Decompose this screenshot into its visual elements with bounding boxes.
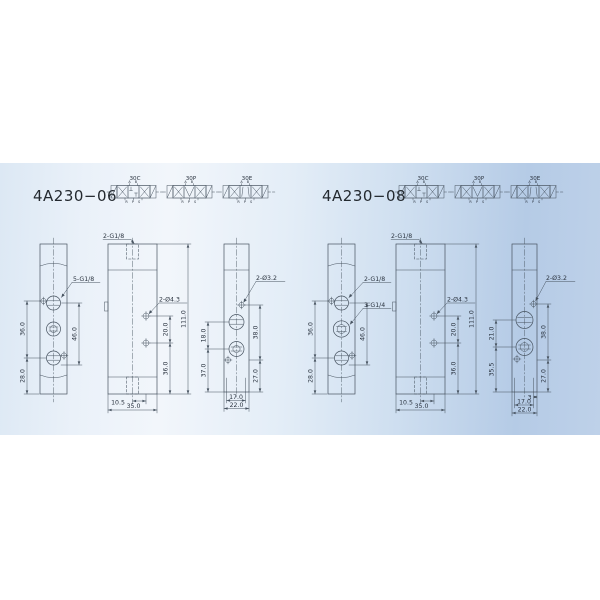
valve-symbol-row-06: 30C A B R P S 30P A B R P S <box>107 174 275 204</box>
front-view-08: 2-G1/8 2-Ø4.3 20.0 36.0 111.0 10.5 35.0 <box>386 230 494 416</box>
thread-label: 2-G1/8 <box>391 233 412 240</box>
valve-symbol-row-08: 30C A B R P S 30P A B R P S <box>395 174 563 204</box>
valve-symbol-30e: 30E A B R P S <box>507 174 563 204</box>
dim-label: 18.0 <box>201 329 208 343</box>
dim-label: 10.5 <box>111 400 125 407</box>
dim-label: 111.0 <box>181 310 188 328</box>
dim-label: 46.0 <box>360 327 367 341</box>
symbol-bottom-ports: R P S <box>469 200 485 204</box>
hole-label: 2-Ø3.2 <box>546 274 567 282</box>
symbol-bottom-ports: R P S <box>413 200 429 204</box>
symbol-top-ports: A B <box>184 180 194 184</box>
dim-label: 27.0 <box>541 369 548 383</box>
dim-label: 21.0 <box>489 327 496 341</box>
front-view-06: 2-G1/8 2-Ø4.3 20.0 36.0 111.0 10.5 35.0 <box>98 230 206 416</box>
dim-label: 36.0 <box>20 322 27 336</box>
hole-label: 2-Ø3.2 <box>256 274 277 282</box>
valve-symbol-30e: 30E A B R P S <box>219 174 275 204</box>
valve-symbol-art <box>451 184 507 201</box>
symbol-top-ports: A B <box>528 180 538 184</box>
side-view-art <box>493 238 575 416</box>
port-view-art <box>24 238 100 402</box>
dim-label: 46.0 <box>72 327 79 341</box>
thread-label: 2-G1/8 <box>364 276 385 283</box>
symbol-top-ports: A B <box>128 180 138 184</box>
valve-symbol-art <box>507 184 563 201</box>
port-view-art <box>312 238 391 402</box>
dim-label: 111.0 <box>469 310 476 328</box>
dim-label: 27.0 <box>253 369 260 383</box>
valve-symbol-art <box>163 184 219 201</box>
catalog-drawing-page: 4A230−06 30C A B R P S <box>0 0 600 600</box>
dim-label: 17.0 <box>229 394 243 401</box>
symbol-top-ports: A B <box>416 180 426 184</box>
symbol-bottom-ports: R P S <box>181 200 197 204</box>
symbol-bottom-ports: R P S <box>525 200 541 204</box>
valve-symbol-30c: 30C A B R P S <box>395 174 451 204</box>
dim-label: 17.0 <box>517 399 531 406</box>
dim-label: 38.0 <box>253 326 260 340</box>
model-title-08: 4A230−08 <box>322 187 406 205</box>
model-title-06: 4A230−06 <box>33 187 117 205</box>
valve-symbol-art <box>107 184 163 201</box>
symbol-bottom-ports: R P S <box>125 200 141 204</box>
symbol-top-ports: A B <box>240 180 250 184</box>
side-view-06: 2-Ø3.2 18.0 37.0 38.0 27.0 17.0 22.0 <box>194 230 294 422</box>
dim-label: 22.0 <box>230 402 244 409</box>
dim-label: 37.0 <box>201 364 208 378</box>
dim-label: 28.0 <box>308 369 315 383</box>
thread-label: 5-G1/8 <box>73 276 94 283</box>
dim-label: 10.5 <box>399 400 413 407</box>
front-view-art <box>391 238 479 413</box>
dim-label: 20.0 <box>163 323 170 337</box>
dim-label: 28.0 <box>20 369 27 383</box>
hole-label: 2-Ø4.3 <box>159 296 180 304</box>
dim-label: 36.0 <box>163 362 170 376</box>
dim-label: 22.0 <box>518 407 532 414</box>
valve-symbol-art <box>395 184 451 201</box>
front-view-art <box>103 238 191 413</box>
thread-label: 2-G1/8 <box>103 233 124 240</box>
valve-symbol-art <box>219 184 275 201</box>
symbol-bottom-ports: R P S <box>237 200 253 204</box>
hole-label: 2-Ø4.3 <box>447 296 468 304</box>
dim-label: 38.0 <box>541 325 548 339</box>
valve-symbol-30p: 30P A B R P S <box>451 174 507 204</box>
side-view-08: 2-Ø3.2 21.0 35.5 38.0 27.0 3 17.0 22.0 <box>482 230 582 422</box>
dim-label: 35.0 <box>415 403 429 410</box>
side-view-art <box>205 238 285 412</box>
dim-label: 35.0 <box>127 403 141 410</box>
dim-label: 36.0 <box>308 322 315 336</box>
dim-label: 36.0 <box>451 362 458 376</box>
dim-label: 20.0 <box>451 323 458 337</box>
thread-label: 3-G1/4 <box>364 302 385 309</box>
symbol-top-ports: A B <box>472 180 482 184</box>
valve-symbol-30c: 30C A B R P S <box>107 174 163 204</box>
valve-symbol-30p: 30P A B R P S <box>163 174 219 204</box>
dim-label: 35.5 <box>489 363 496 377</box>
